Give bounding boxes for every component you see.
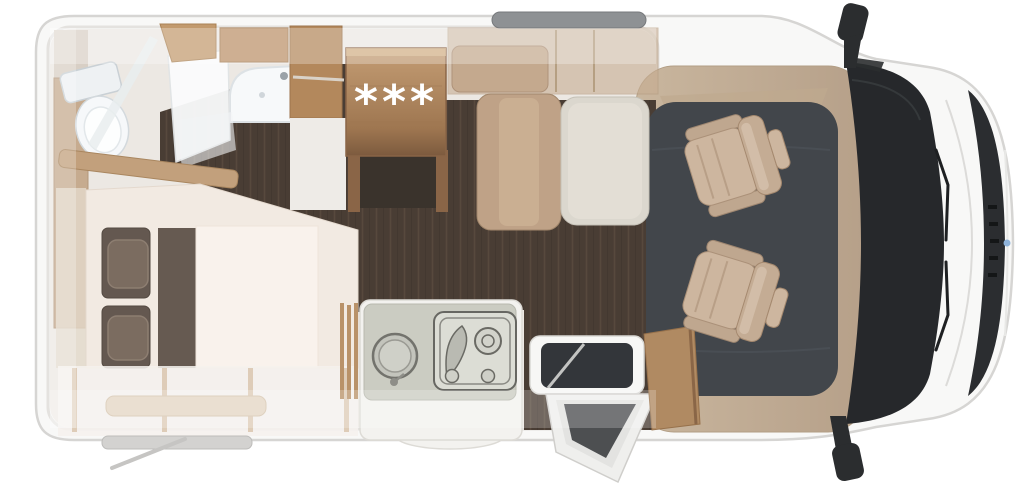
roof-vent: [492, 12, 646, 28]
bed-duvet: [196, 226, 318, 368]
heater-rib: [340, 303, 344, 399]
fridge-freezer-symbol: ***: [354, 75, 438, 129]
bed-pillow-2: [102, 306, 150, 368]
heater-rib: [354, 303, 358, 399]
wardrobe-interior: [290, 118, 346, 210]
floorplan-canvas: ***: [0, 0, 1024, 498]
hob-burner-small: [446, 370, 459, 383]
hob-burner-small: [482, 370, 495, 383]
bed-runner: [158, 228, 196, 368]
fridge-cabinet: ***: [346, 48, 448, 212]
hob-burner-large: [475, 328, 501, 354]
hob: [434, 312, 516, 390]
shower-drain: [259, 92, 265, 98]
bed-pillow-1: [102, 228, 150, 298]
heater-rib: [347, 305, 351, 399]
awning: [102, 436, 252, 468]
motorhome-floorplan: ***: [0, 0, 1024, 498]
brand-badge: [1004, 240, 1011, 247]
shower-faucet: [280, 72, 288, 80]
